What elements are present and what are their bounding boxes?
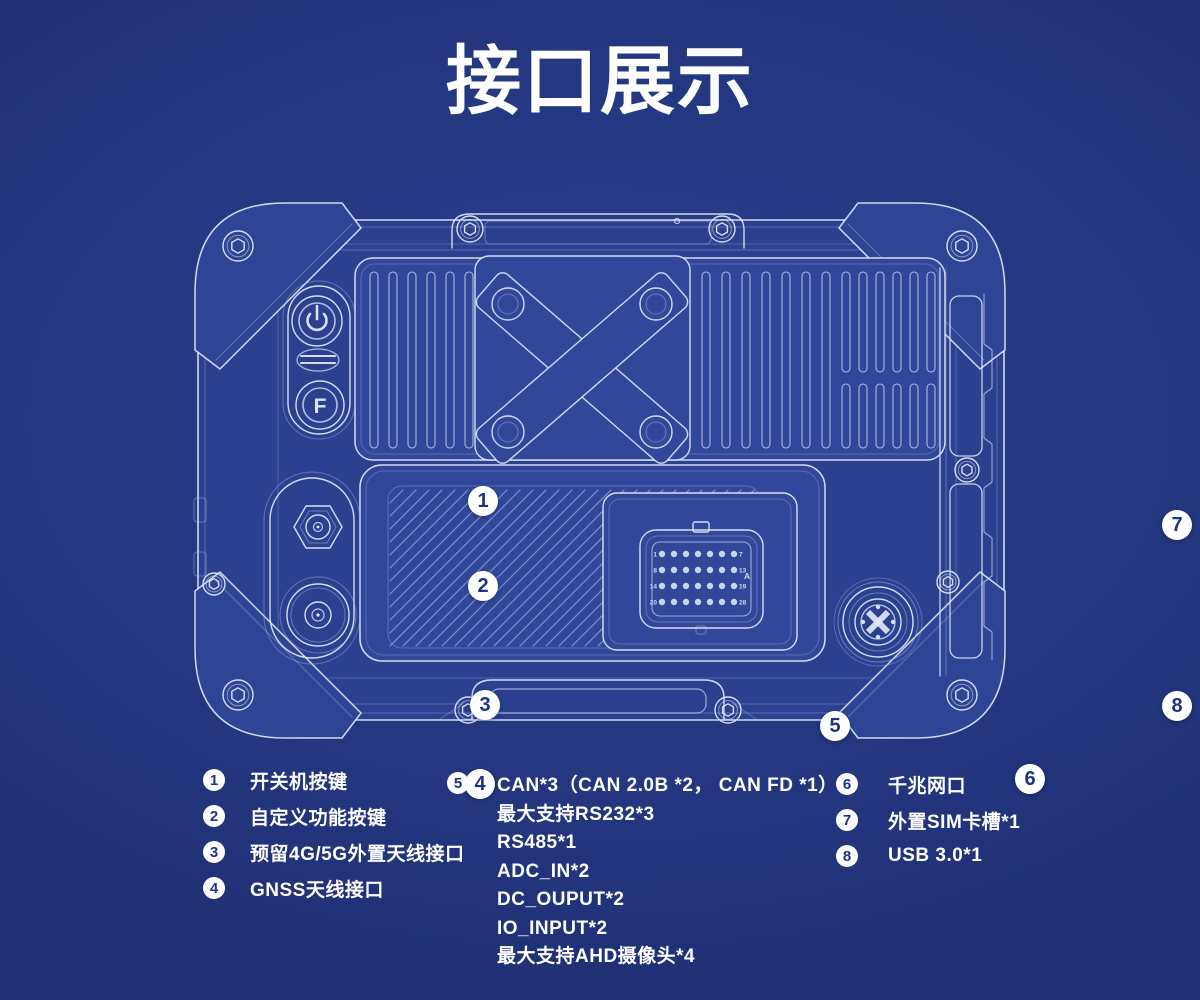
x-mount-plate xyxy=(473,256,691,466)
legend-item-antenna: 3 预留4G/5G外置天线接口 xyxy=(203,841,464,863)
legend-label-power: 开关机按键 xyxy=(250,767,348,794)
page-title: 接口展示 xyxy=(0,40,1200,123)
legend-line-ahd: 最大支持AHD摄像头*4 xyxy=(497,943,838,972)
svg-text:8: 8 xyxy=(653,568,657,575)
callout-8-usb-port: 8 xyxy=(1162,691,1192,721)
legend-label-function-button: 自定义功能按键 xyxy=(250,803,387,830)
legend-num-4: 4 xyxy=(203,877,225,899)
legend-label-antenna: 预留4G/5G外置天线接口 xyxy=(250,839,464,866)
callout-3-antenna-port: 3 xyxy=(470,690,500,720)
callout-2-function-button: 2 xyxy=(468,571,498,601)
legend-item-usb: 8 USB 3.0*1 xyxy=(836,845,1020,867)
svg-text:20: 20 xyxy=(650,600,658,607)
legend-line-rs232: 最大支持RS232*3 xyxy=(497,801,838,830)
page: 接口展示 xyxy=(0,0,1200,1000)
legend-item-ethernet: 6 千兆网口 xyxy=(836,773,1020,795)
legend-num-6: 6 xyxy=(836,773,858,795)
legend-item-gnss: 4 GNSS天线接口 xyxy=(203,877,464,899)
legend-column-3: 6 千兆网口 7 外置SIM卡槽*1 8 USB 3.0*1 xyxy=(836,773,1020,881)
legend-item-sim: 7 外置SIM卡槽*1 xyxy=(836,809,1020,831)
legend-num-1: 1 xyxy=(203,769,225,791)
legend-label-gnss: GNSS天线接口 xyxy=(250,875,384,902)
legend-num-5: 5 xyxy=(447,772,469,794)
svg-text:1: 1 xyxy=(653,552,657,559)
legend-line-dc: DC_OUPUT*2 xyxy=(497,886,838,915)
legend-line-adc: ADC_IN*2 xyxy=(497,858,838,887)
callout-1-power-button: 1 xyxy=(468,486,498,516)
legend-num-7: 7 xyxy=(836,809,858,831)
legend-column-2: 5 CAN*3（CAN 2.0B *2， CAN FD *1） 最大支持RS23… xyxy=(447,772,838,972)
legend-item-io-lines: CAN*3（CAN 2.0B *2， CAN FD *1） 最大支持RS232*… xyxy=(497,772,838,972)
callout-7-sim-slot: 7 xyxy=(1162,510,1192,540)
legend-num-3: 3 xyxy=(203,841,225,863)
legend-line-rs485: RS485*1 xyxy=(497,829,838,858)
connector-zone-label: A xyxy=(744,571,750,581)
svg-text:14: 14 xyxy=(650,584,658,591)
legend-line-can: CAN*3（CAN 2.0B *2， CAN FD *1） xyxy=(497,772,838,801)
device-back-drawing: 1 7 8 13 14 19 20 28 A xyxy=(190,198,1010,743)
gnss-antenna-connector xyxy=(280,577,356,653)
legend-item-function-button: 2 自定义功能按键 xyxy=(203,805,464,827)
svg-text:19: 19 xyxy=(739,584,747,591)
legend-label-ethernet: 千兆网口 xyxy=(888,771,966,798)
svg-text:7: 7 xyxy=(739,552,743,559)
function-button: F xyxy=(296,381,344,429)
legend-label-usb: USB 3.0*1 xyxy=(888,845,982,867)
device-diagram: 1 7 8 13 14 19 20 28 A xyxy=(190,198,1010,743)
legend-line-io: IO_INPUT*2 xyxy=(497,915,838,944)
callout-5-multipin-connector: 5 xyxy=(820,711,850,741)
svg-text:28: 28 xyxy=(739,600,747,607)
legend-num-8: 8 xyxy=(836,845,858,867)
legend-column-1: 1 开关机按键 2 自定义功能按键 3 预留4G/5G外置天线接口 4 GNSS… xyxy=(203,769,464,913)
legend-label-sim: 外置SIM卡槽*1 xyxy=(888,807,1020,834)
f-button-label: F xyxy=(314,395,327,418)
multipin-connector: 1 7 8 13 14 19 20 28 A xyxy=(603,493,797,650)
legend-item-power: 1 开关机按键 xyxy=(203,769,464,791)
legend-num-2: 2 xyxy=(203,805,225,827)
